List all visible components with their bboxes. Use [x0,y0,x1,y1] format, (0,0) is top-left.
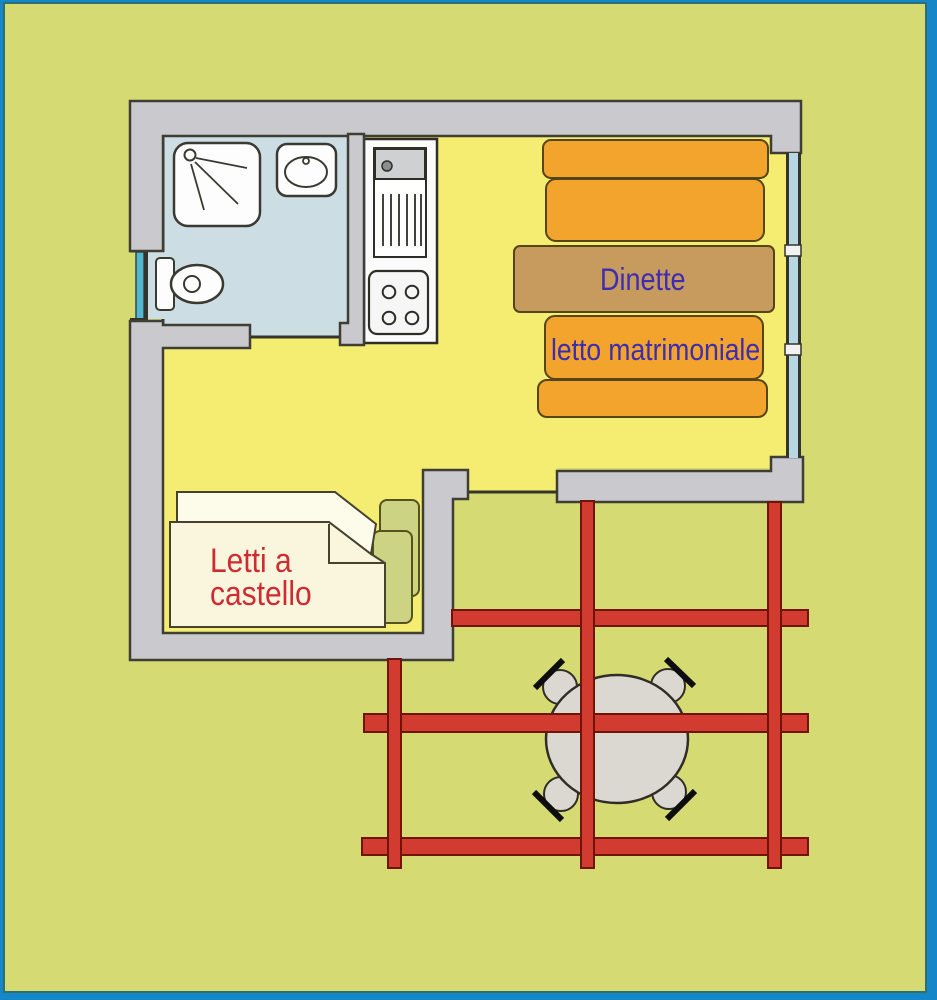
svg-text:letto matrimoniale: letto matrimoniale [551,334,760,368]
svg-text:castello: castello [210,574,312,612]
svg-text:Dinette: Dinette [600,263,686,297]
